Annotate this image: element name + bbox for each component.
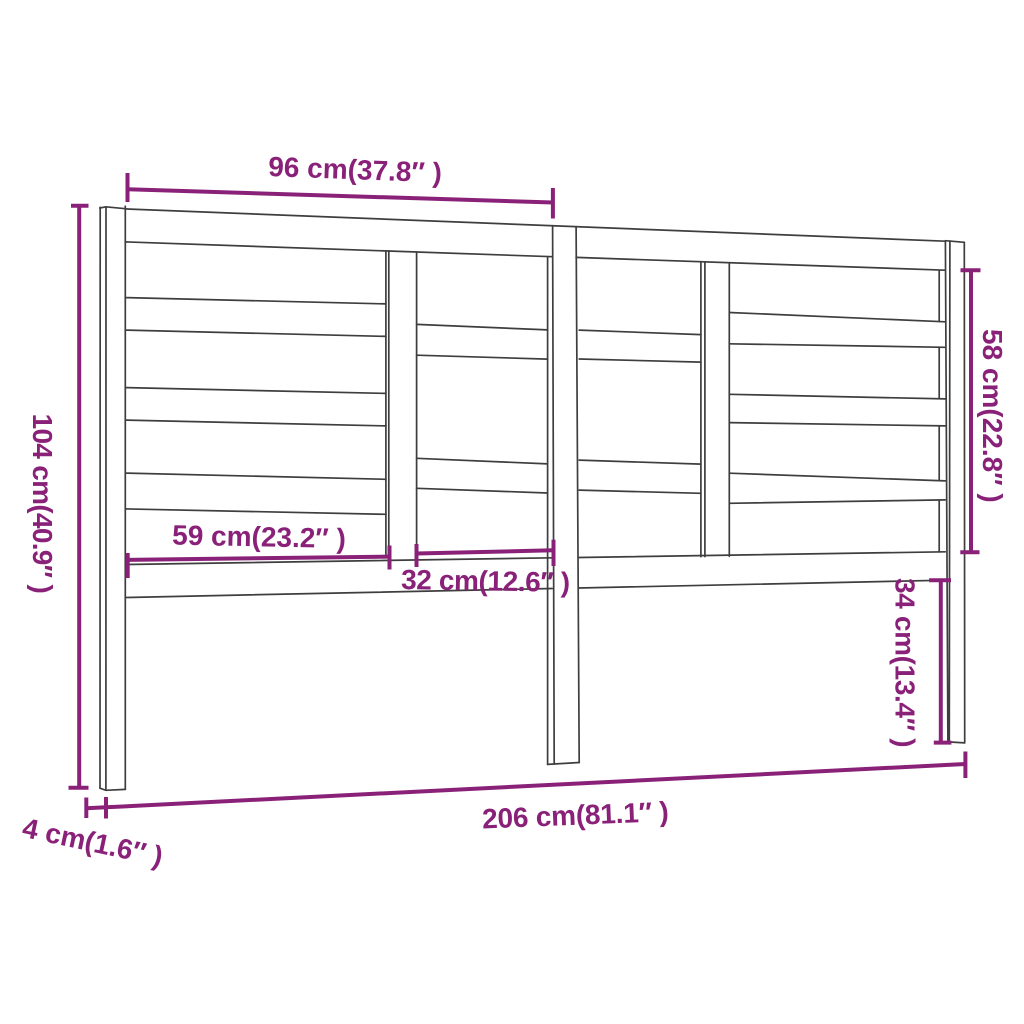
svg-text:58 cm(22.8″ ): 58 cm(22.8″ )	[977, 329, 1008, 503]
svg-text:34 cm(13.4″ ): 34 cm(13.4″ )	[890, 578, 921, 747]
svg-text:59 cm(23.2″ ): 59 cm(23.2″ )	[172, 520, 346, 555]
svg-text:96 cm(37.8″ ): 96 cm(37.8″ )	[268, 151, 443, 188]
svg-text:32 cm(12.6″ ): 32 cm(12.6″ )	[401, 564, 570, 598]
svg-text:104 cm(40.9″ ): 104 cm(40.9″ )	[27, 414, 58, 594]
